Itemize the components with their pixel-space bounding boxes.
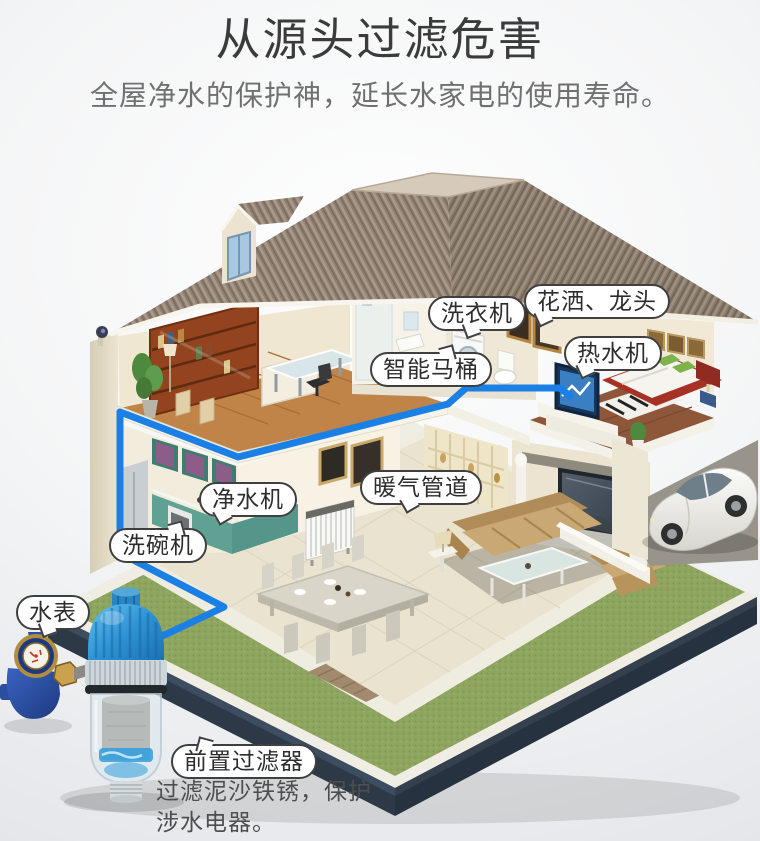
label-heating-pipes: 暖气管道 [360,470,482,505]
house-illustration [0,0,760,841]
label-smart-toilet: 智能马桶 [370,352,492,387]
label-dishwasher: 洗碗机 [109,528,207,563]
prefilter-description-line1: 过滤泥沙铁锈，保护 [156,776,372,807]
page-title: 从源头过滤危害 [0,14,760,66]
car-headlight [650,517,658,523]
car [642,468,758,554]
page-subtitle: 全屋净水的保护神，延长水家电的使用寿命。 [0,78,760,114]
prefilter-description-line2: 涉水电器。 [156,807,372,838]
label-water-purifier: 净水机 [199,482,297,517]
meter-shadow [4,718,72,734]
label-water-heater: 热水机 [564,336,662,371]
filter-oring [85,685,167,694]
prefilter-description: 过滤泥沙铁锈，保护 涉水电器。 [156,776,372,838]
promo-page: 从源头过滤危害 全屋净水的保护神，延长水家电的使用寿命。 洗衣机 花洒、龙头 热… [0,0,760,841]
label-prefilter: 前置过滤器 [171,744,317,779]
filter-collar-ribs [90,661,160,685]
filter-blue-band [99,748,153,762]
label-washing-machine: 洗衣机 [428,296,526,331]
label-water-meter: 水表 [16,595,90,630]
sculpture [515,453,527,510]
label-shower-faucet: 花洒、龙头 [524,284,670,319]
prefilter-product [85,588,167,804]
